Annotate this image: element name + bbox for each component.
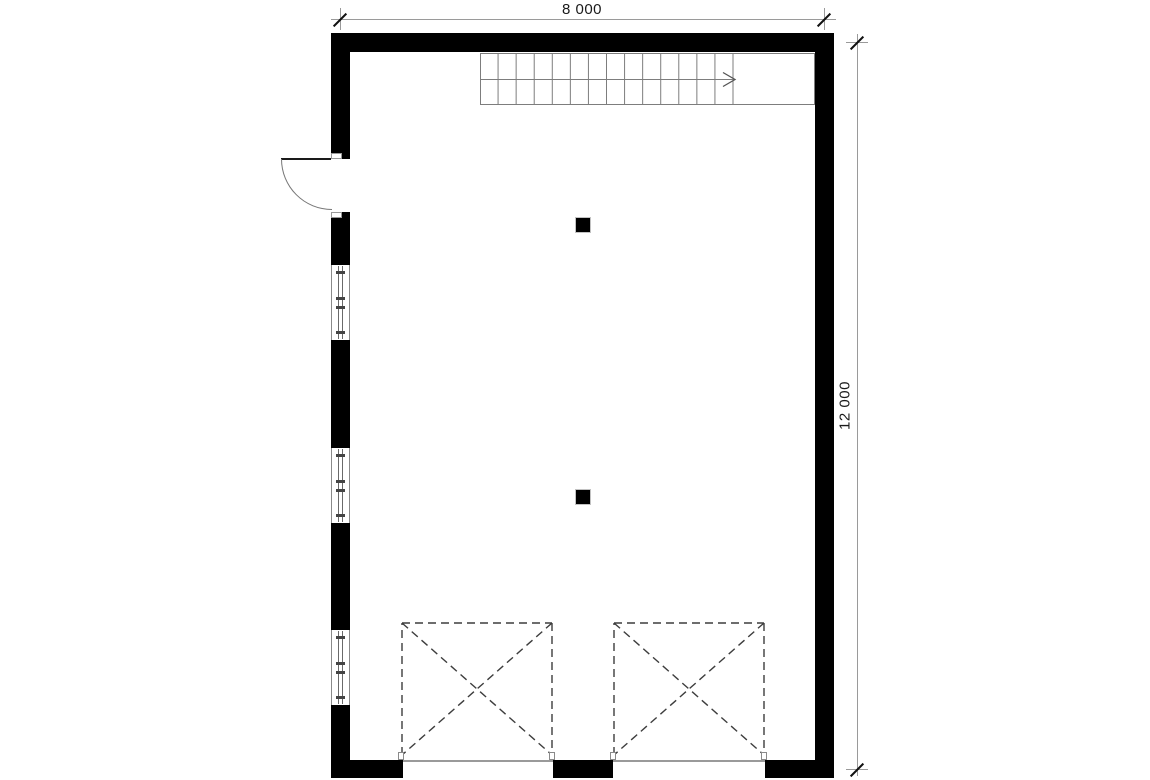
window-frame-tick bbox=[336, 696, 345, 699]
column-1 bbox=[576, 218, 590, 232]
window-glazing-line bbox=[338, 449, 339, 522]
window-frame-tick bbox=[336, 489, 345, 492]
wall-top bbox=[331, 33, 834, 52]
garage-jamb-mark bbox=[610, 752, 616, 760]
wall-left-segment-4 bbox=[331, 523, 350, 630]
wall-left-segment-1 bbox=[331, 33, 350, 159]
window-glazing-line bbox=[342, 631, 343, 704]
window-glazing-line bbox=[338, 266, 339, 339]
window-glazing-line bbox=[338, 631, 339, 704]
wall-left-segment-2 bbox=[331, 212, 350, 265]
window-frame-tick bbox=[336, 331, 345, 334]
window-outer-face-line bbox=[331, 265, 332, 340]
dimension-label-width: 8 000 bbox=[507, 1, 657, 18]
window-frame-tick bbox=[336, 271, 345, 274]
wall-right bbox=[815, 33, 834, 778]
window-frame-tick bbox=[336, 514, 345, 517]
window-glazing-line bbox=[342, 449, 343, 522]
garage-jamb-mark bbox=[761, 752, 767, 760]
dimension-label-height: 12 000 bbox=[837, 331, 854, 481]
window-inner-face-line bbox=[349, 265, 350, 340]
window-frame-tick bbox=[336, 671, 345, 674]
garage-door-2-swing bbox=[614, 623, 764, 755]
wall-left-segment-3 bbox=[331, 340, 350, 448]
floor-plan-canvas: 8 000 12 000 bbox=[0, 0, 1150, 780]
window-frame-tick bbox=[336, 306, 345, 309]
wall-bottom-left bbox=[331, 760, 403, 778]
window-outer-face-line bbox=[331, 448, 332, 523]
wall-bottom-right bbox=[765, 760, 834, 778]
door-jamb-top bbox=[331, 153, 342, 159]
window-inner-face-line bbox=[349, 448, 350, 523]
plan-linework bbox=[0, 0, 1150, 780]
window-frame-tick bbox=[336, 297, 345, 300]
window-3 bbox=[331, 630, 350, 705]
dimension-line-top bbox=[331, 19, 836, 20]
window-1 bbox=[331, 265, 350, 340]
window-frame-tick bbox=[336, 454, 345, 457]
window-frame-tick bbox=[336, 480, 345, 483]
door-jamb-bottom bbox=[331, 212, 342, 218]
window-frame-tick bbox=[336, 636, 345, 639]
wall-bottom-middle bbox=[553, 760, 613, 778]
column-2 bbox=[576, 490, 590, 504]
window-inner-face-line bbox=[349, 630, 350, 705]
dimension-line-right bbox=[857, 34, 858, 776]
garage-jamb-mark bbox=[549, 752, 555, 760]
staircase bbox=[480, 53, 815, 105]
garage-door-1-swing bbox=[402, 623, 552, 755]
window-glazing-line bbox=[342, 266, 343, 339]
garage-jamb-mark bbox=[398, 752, 404, 760]
window-2 bbox=[331, 448, 350, 523]
window-frame-tick bbox=[336, 662, 345, 665]
window-outer-face-line bbox=[331, 630, 332, 705]
